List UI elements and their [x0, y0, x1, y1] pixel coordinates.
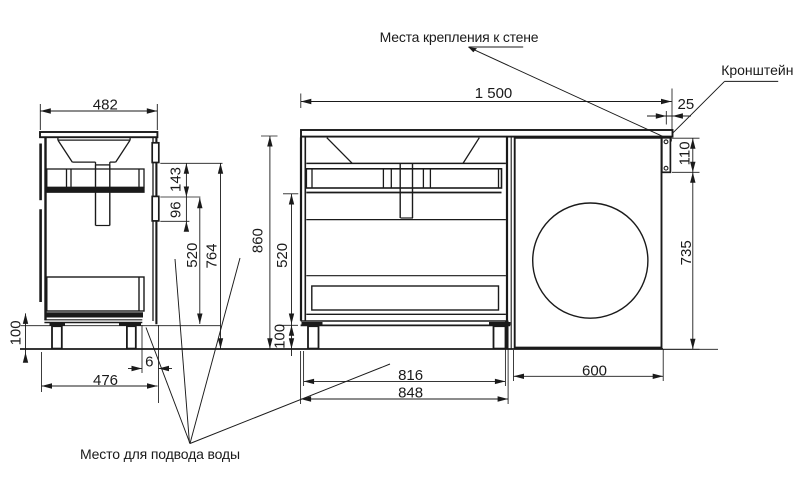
svg-text:1 500: 1 500	[475, 85, 513, 102]
svg-text:816: 816	[398, 367, 423, 384]
svg-text:764: 764	[203, 243, 220, 268]
svg-text:848: 848	[398, 384, 423, 401]
svg-text:110: 110	[677, 141, 694, 165]
svg-text:100: 100	[7, 320, 24, 345]
svg-text:96: 96	[167, 201, 184, 218]
svg-text:860: 860	[250, 228, 267, 253]
svg-text:476: 476	[93, 372, 118, 389]
svg-text:25: 25	[678, 96, 695, 113]
svg-text:735: 735	[678, 240, 695, 265]
svg-text:6: 6	[145, 354, 153, 371]
svg-text:482: 482	[93, 97, 118, 114]
svg-text:Места крепления к стене: Места крепления к стене	[380, 29, 539, 45]
svg-text:Место для подвода воды: Место для подвода воды	[80, 446, 240, 462]
svg-text:143: 143	[167, 167, 184, 192]
svg-text:Кронштейн: Кронштейн	[721, 62, 793, 78]
svg-text:520: 520	[184, 243, 201, 268]
svg-text:520: 520	[274, 243, 291, 268]
svg-text:600: 600	[582, 363, 607, 380]
svg-text:100: 100	[272, 324, 289, 349]
